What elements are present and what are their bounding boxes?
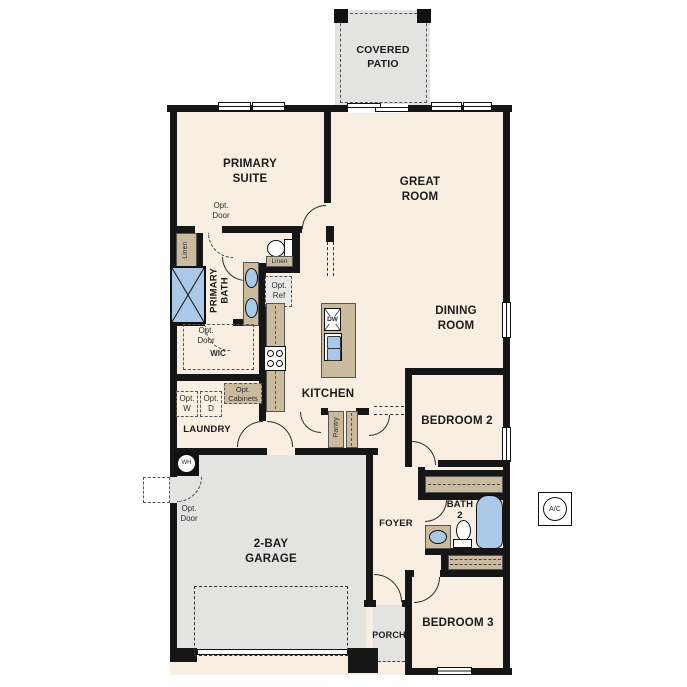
wall: [348, 648, 378, 673]
ac-label: A/C: [543, 506, 567, 514]
wall: [405, 368, 510, 375]
opt-door-stoop: [143, 477, 170, 503]
burner: [267, 350, 274, 357]
kitchen-label: KITCHEN: [298, 387, 358, 402]
bedroom3-label: BEDROOM 3: [415, 616, 501, 631]
closet-shelf: [428, 484, 500, 485]
shower-icon: [172, 268, 204, 322]
garage-label: 2-BAY GARAGE: [234, 537, 308, 567]
opt-door-label: Opt. Door: [174, 504, 204, 523]
opt-washer-label: Opt. W: [177, 394, 197, 413]
toilet-tank: [453, 539, 472, 548]
porch-label: PORCH: [371, 630, 407, 642]
wic-label: WIC: [206, 349, 230, 359]
opt-door-label: Opt. Door: [191, 326, 221, 345]
island-sink: [324, 333, 342, 361]
wall: [324, 112, 331, 203]
shelf-edge: [351, 413, 352, 446]
wall: [405, 368, 412, 467]
wall: [503, 105, 510, 675]
opt-cabinets-label: Opt. Cabinets: [224, 385, 262, 403]
wall: [222, 226, 302, 233]
burner: [267, 360, 274, 367]
closet-rod: [450, 564, 501, 565]
bathtub: [476, 495, 503, 549]
opt-door-label: Opt. Door: [206, 201, 236, 220]
wall: [405, 460, 412, 467]
wall: [170, 374, 266, 381]
bath2-label: BATH 2: [443, 499, 477, 522]
bedroom3-closet: [448, 555, 503, 570]
sink: [245, 268, 258, 288]
sink: [429, 530, 447, 544]
wall: [366, 448, 373, 605]
covered-patio-label: COVERED PATIO: [345, 44, 421, 71]
wall: [425, 548, 503, 555]
toilet: [267, 240, 285, 257]
linen-label: Linen: [266, 258, 293, 266]
window: [437, 667, 472, 675]
wall: [326, 226, 334, 242]
pantry-label: Pantry: [333, 410, 341, 444]
opt-dryer-label: Opt. D: [201, 394, 221, 413]
sliding-door-pane: [375, 107, 409, 112]
window: [463, 102, 492, 111]
sink: [245, 298, 258, 318]
toilet-tank: [284, 239, 293, 257]
closet-shelf: [450, 559, 501, 560]
opt-ref-label: Opt. Ref: [266, 281, 292, 300]
wall: [438, 460, 510, 467]
wall: [170, 226, 195, 233]
dishwasher-label: DW: [326, 316, 339, 324]
patio-post: [417, 9, 431, 23]
primary-bath-label: PRIMARY BATH: [209, 258, 232, 322]
foyer-label: FOYER: [375, 518, 417, 530]
wall: [170, 648, 197, 662]
window: [502, 302, 511, 338]
wall: [405, 570, 412, 675]
window: [431, 102, 462, 111]
burner: [276, 360, 283, 367]
burner: [276, 350, 283, 357]
shower: [170, 266, 206, 324]
cased-opening: [374, 406, 404, 415]
laundry-label: LAUNDRY: [180, 424, 234, 436]
optional-opening: [327, 242, 334, 276]
window: [218, 102, 251, 111]
wall: [264, 266, 300, 273]
sink-basin: [327, 348, 341, 361]
wall: [170, 105, 177, 662]
water-heater-label: WH: [177, 460, 196, 467]
ac-pad: A/C: [538, 492, 572, 526]
patio-post: [334, 9, 348, 23]
window: [502, 427, 511, 462]
wall: [321, 408, 328, 415]
pantry-shelf: [346, 411, 358, 448]
linen-label: Linen: [182, 235, 190, 265]
range: [264, 346, 286, 371]
bedroom2-label: BEDROOM 2: [415, 414, 499, 429]
wall: [405, 570, 414, 577]
floor-plan: COVERED PATIO: [0, 0, 687, 687]
wall: [441, 570, 503, 577]
toilet: [456, 520, 471, 541]
garage-door-outline: [194, 586, 348, 656]
wall: [418, 467, 425, 500]
great-room-label: GREAT ROOM: [385, 175, 455, 205]
primary-suite-label: PRIMARY SUITE: [215, 157, 285, 187]
dining-room-label: DINING ROOM: [420, 304, 492, 334]
window: [252, 102, 285, 111]
dishwasher: DW: [324, 308, 341, 331]
